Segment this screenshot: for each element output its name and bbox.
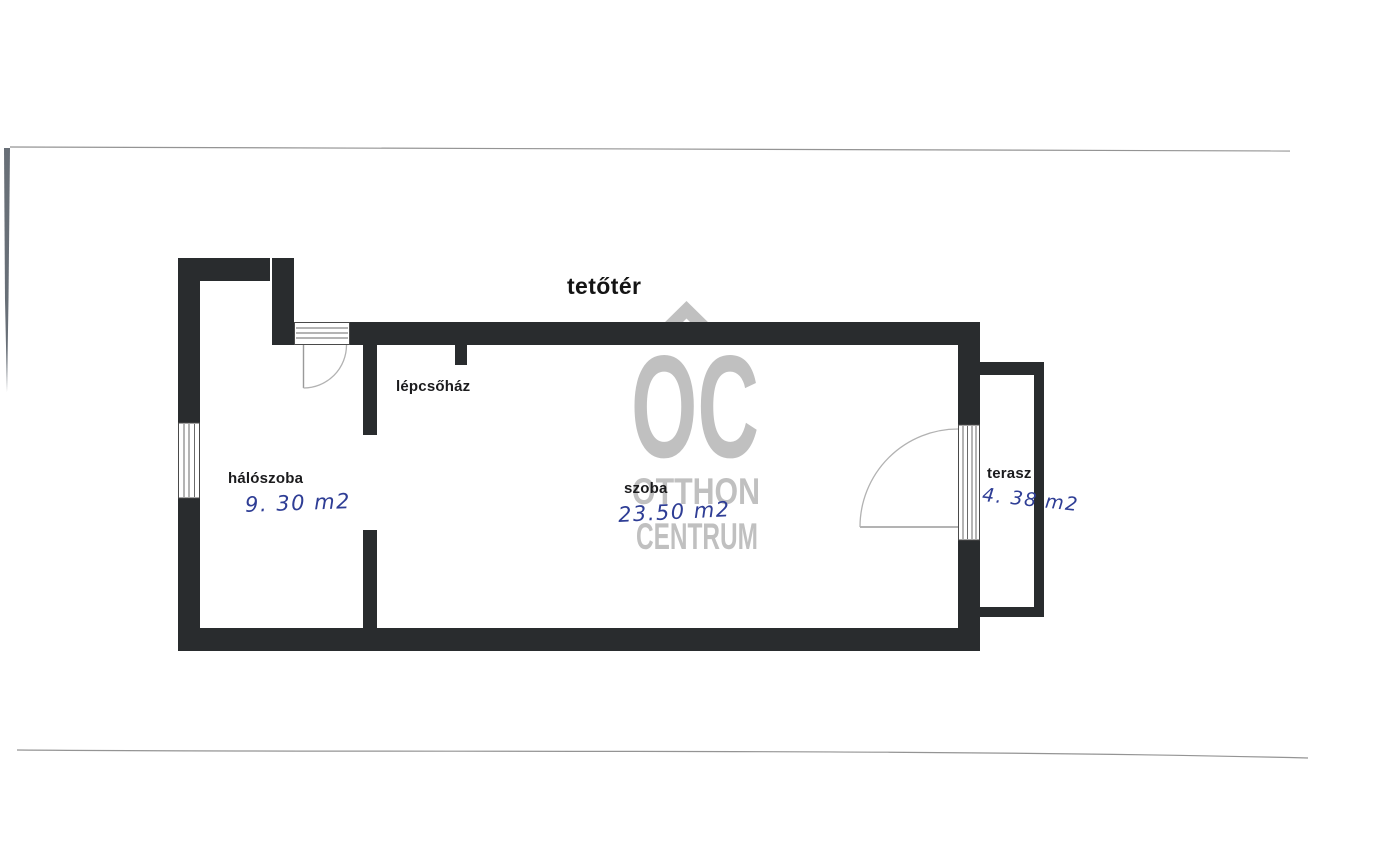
- wall-bottom: [178, 628, 980, 651]
- watermark-logo-text: OC: [631, 325, 759, 488]
- wall-terrace-bottom: [980, 607, 1044, 617]
- wall-divider-upper: [363, 345, 377, 435]
- wall-left-lower: [178, 498, 200, 650]
- wall-notch-vertical: [272, 258, 294, 345]
- bedroom-window: [179, 423, 200, 498]
- plan-title: tetőtér: [567, 273, 641, 300]
- room-label-terrace: terasz: [987, 465, 1032, 482]
- terrace-door: [860, 425, 980, 540]
- wall-right-lower: [958, 540, 980, 651]
- room-label-staircase: lépcsőház: [396, 378, 470, 395]
- walls: [178, 258, 1044, 651]
- wall-stair-stub: [455, 345, 467, 365]
- scan-left-edge-bar: [4, 148, 10, 392]
- wall-right-upper: [958, 345, 980, 425]
- room-label-room: szoba: [624, 480, 668, 497]
- room-label-bedroom: hálószoba: [228, 470, 303, 487]
- entry-door: [295, 323, 350, 389]
- wall-divider-lower: [363, 530, 377, 630]
- wall-left-upper: [178, 258, 200, 423]
- room-area-bedroom: 9. 30 m2: [245, 489, 352, 517]
- floor-plan-drawing: OC OTTHON CENTRUM: [0, 0, 1393, 854]
- scanned-floor-plan-page: { "title": "tetőtér", "rooms": [ { "name…: [0, 0, 1393, 854]
- wall-top-main: [350, 322, 980, 345]
- scan-bottom-edge-line: [17, 750, 1308, 758]
- scan-top-edge-line: [10, 147, 1290, 151]
